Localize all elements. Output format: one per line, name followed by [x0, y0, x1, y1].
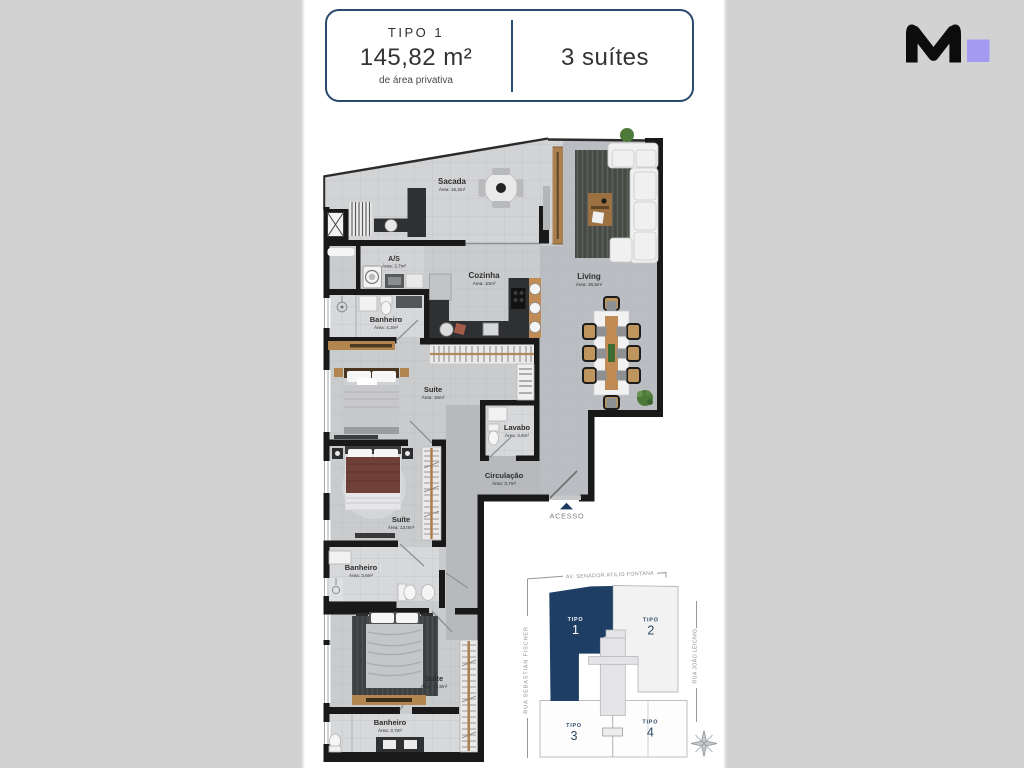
- svg-text:Área: 3,7m²: Área: 3,7m²: [492, 480, 516, 486]
- svg-text:ACESSO: ACESSO: [550, 512, 585, 521]
- svg-text:2: 2: [647, 624, 654, 638]
- svg-text:AV. SENADOR ATILIO FONTANA: AV. SENADOR ATILIO FONTANA: [566, 571, 655, 581]
- svg-text:Área: 13,0m²: Área: 13,0m²: [388, 524, 415, 530]
- svg-text:Banheiro: Banheiro: [374, 718, 407, 727]
- svg-text:RUA JOÃO LEICNIG: RUA JOÃO LEICNIG: [692, 628, 699, 683]
- svg-text:A/S: A/S: [388, 256, 400, 263]
- svg-text:Lavabo: Lavabo: [504, 423, 531, 432]
- svg-text:1: 1: [572, 623, 579, 637]
- svg-text:Suíte: Suíte: [425, 674, 443, 683]
- svg-text:Suíte: Suíte: [424, 385, 442, 394]
- svg-text:Área: 3,6m²: Área: 3,6m²: [349, 572, 373, 578]
- svg-text:Living: Living: [577, 272, 601, 281]
- svg-text:Área: 36,5m²: Área: 36,5m²: [576, 281, 603, 287]
- svg-text:Área: 13,8m²: Área: 13,8m²: [421, 683, 448, 689]
- svg-text:Área: 3,7m²: Área: 3,7m²: [378, 727, 402, 733]
- svg-text:Cozinha: Cozinha: [468, 271, 500, 280]
- svg-text:3: 3: [571, 729, 578, 743]
- svg-text:RUA SEBASTIAN FISCHER: RUA SEBASTIAN FISCHER: [524, 626, 530, 713]
- svg-text:4: 4: [647, 726, 654, 740]
- svg-text:Área: 4,3m²: Área: 4,3m²: [374, 324, 398, 330]
- svg-text:Área: 3,6m²: Área: 3,6m²: [505, 432, 529, 438]
- svg-text:Área: 2,7m²: Área: 2,7m²: [382, 263, 406, 269]
- svg-text:Área: 10m²: Área: 10m²: [473, 280, 496, 286]
- svg-text:Banheiro: Banheiro: [370, 315, 403, 324]
- svg-text:Área: 16,2m²: Área: 16,2m²: [439, 186, 466, 192]
- svg-text:Área: 16m²: Área: 16m²: [422, 394, 445, 400]
- svg-text:Suíte: Suíte: [392, 515, 410, 524]
- svg-text:Circulação: Circulação: [485, 471, 524, 480]
- svg-text:Banheiro: Banheiro: [345, 563, 378, 572]
- svg-text:Sacada: Sacada: [438, 177, 467, 186]
